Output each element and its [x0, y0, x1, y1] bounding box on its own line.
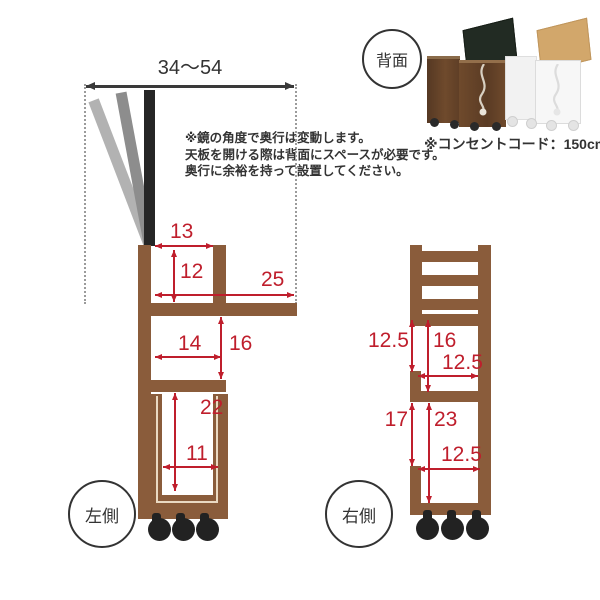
installation-note: ※鏡の角度で奥行は変動します。 天板を開ける際は背面にスペースが必要です。 奥行…	[185, 130, 445, 180]
walnut-cart-photo	[424, 12, 514, 132]
caster-icon	[492, 122, 501, 131]
dim-arrow-mid-height	[220, 317, 222, 379]
note-line-3: 奥行に余裕を持って設置してください。	[185, 163, 445, 180]
left-side-circle-label: 左側	[68, 480, 136, 548]
white-back-tower	[505, 56, 537, 120]
dim-left-mid-height: 16	[229, 333, 252, 354]
caster-wheel	[172, 518, 195, 541]
left-view-tabletop	[138, 303, 297, 316]
dim-left-mid-width: 14	[178, 333, 201, 354]
dim-left-opening-width: 13	[170, 221, 193, 242]
dim-right-lower-height: 23	[434, 409, 457, 430]
caster-icon	[470, 122, 479, 131]
dim-left-lower-width: 11	[186, 443, 208, 464]
guide-line-left	[84, 84, 86, 304]
dim-arrow-opening-width	[155, 245, 213, 247]
caster-icon	[507, 116, 518, 127]
dim-arrow-mid-width	[155, 356, 221, 358]
depth-span-arrow	[86, 85, 294, 88]
dim-arrow-upper-height	[427, 320, 429, 392]
dim-right-lower-width: 12.5	[441, 444, 482, 465]
note-line-2: 天板を開ける際は背面にスペースが必要です。	[185, 147, 445, 164]
caster-wheel	[466, 517, 489, 540]
caster-icon	[450, 120, 459, 129]
caster-icon	[546, 120, 557, 131]
depth-span-label: 34〜54	[140, 58, 240, 78]
dim-right-upper-offset: 12.5	[368, 330, 408, 351]
dim-left-table-depth: 25	[261, 269, 284, 290]
right-view-ladder-bottom	[410, 314, 491, 326]
dim-arrow-lower-height	[174, 393, 176, 491]
right-view-rung-1	[422, 251, 478, 262]
left-side-label-text: 左側	[85, 502, 119, 527]
caster-icon	[430, 118, 439, 127]
left-view-mid-shelf	[138, 380, 226, 392]
right-side-circle-label: 右側	[325, 480, 393, 548]
caster-wheel	[441, 517, 464, 540]
power-cord	[546, 64, 568, 116]
dim-arrow-upper-width	[418, 375, 478, 377]
right-view-rung-2	[422, 275, 478, 286]
dim-arrow-lower-width	[163, 466, 218, 468]
right-view-front-panel	[478, 245, 491, 515]
left-view-top-divider	[213, 245, 226, 305]
note-line-1: ※鏡の角度で奥行は変動します。	[185, 130, 445, 147]
dim-left-opening-height: 12	[180, 261, 203, 282]
right-view-mid-shelf	[410, 391, 491, 402]
dim-right-upper-width: 12.5	[442, 352, 483, 373]
dim-arrow-upper-offset	[411, 320, 413, 372]
mirror-upright	[144, 90, 155, 246]
dim-left-lower-height: 22	[200, 397, 223, 418]
dimension-diagram: 背面	[0, 0, 600, 600]
dim-arrow-table-depth	[155, 294, 294, 296]
right-view-rung-3	[422, 299, 478, 310]
back-view-circle-label: 背面	[362, 29, 422, 89]
right-side-label-text: 右側	[342, 502, 376, 527]
dim-arrow-lower-height	[428, 403, 430, 503]
dim-right-upper-height: 16	[433, 330, 456, 351]
back-view-label-text: 背面	[376, 47, 408, 71]
caster-icon	[526, 118, 537, 129]
walnut-back-tower	[427, 56, 460, 123]
white-cart-photo	[502, 12, 594, 132]
cord-length-caption: ※コンセントコード：150cm	[424, 134, 600, 154]
dim-arrow-side-opening	[411, 403, 413, 466]
right-view-top-rail	[410, 245, 422, 325]
caster-icon	[568, 120, 579, 131]
power-cord	[472, 64, 494, 116]
dim-arrow-lower-width	[418, 468, 480, 470]
caster-wheel	[196, 518, 219, 541]
caster-wheel	[148, 518, 171, 541]
guide-line-right	[295, 84, 297, 304]
caster-wheel	[416, 517, 439, 540]
dim-right-side-opening: 17	[374, 409, 408, 430]
